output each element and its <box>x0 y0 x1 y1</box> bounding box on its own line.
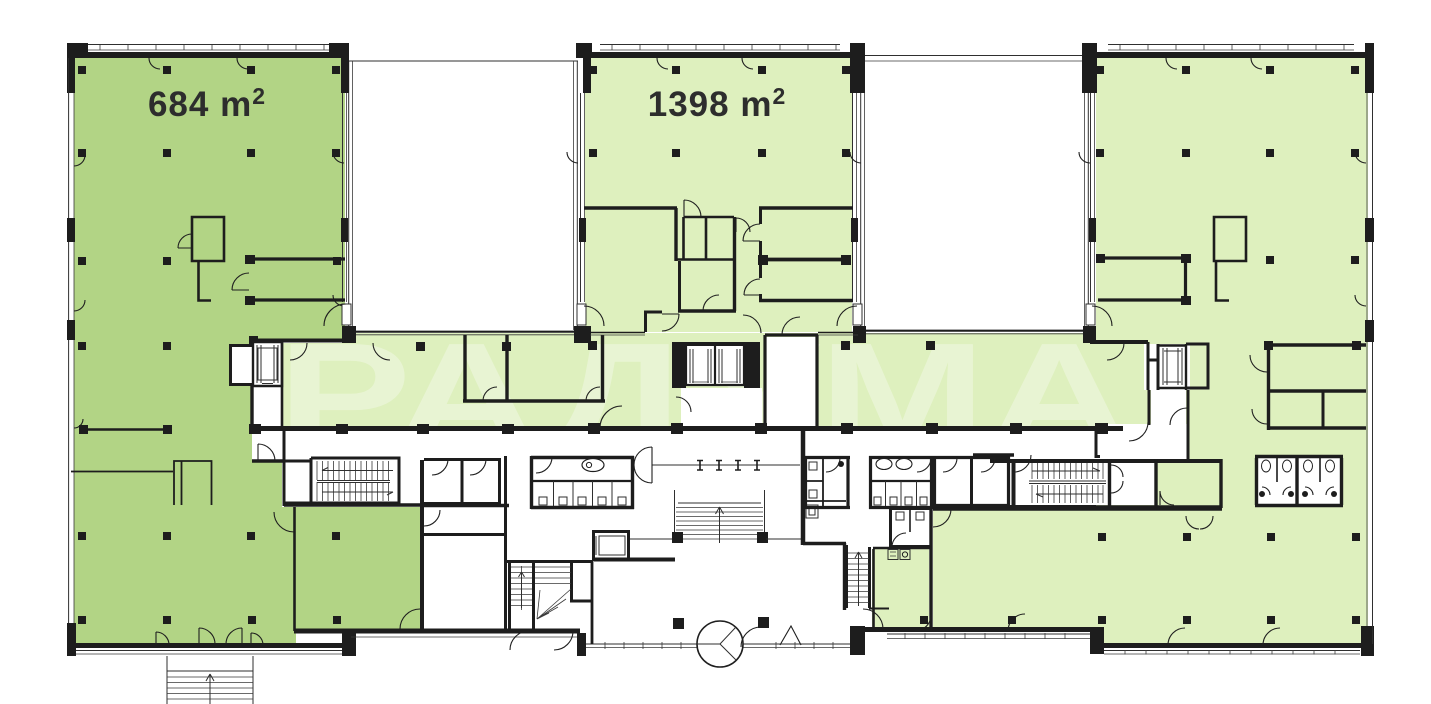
svg-text:684 m2: 684 m2 <box>148 83 266 124</box>
svg-text:1398 m2: 1398 m2 <box>648 83 787 124</box>
svg-text:РАДУМА: РАДУМА <box>277 313 1132 478</box>
